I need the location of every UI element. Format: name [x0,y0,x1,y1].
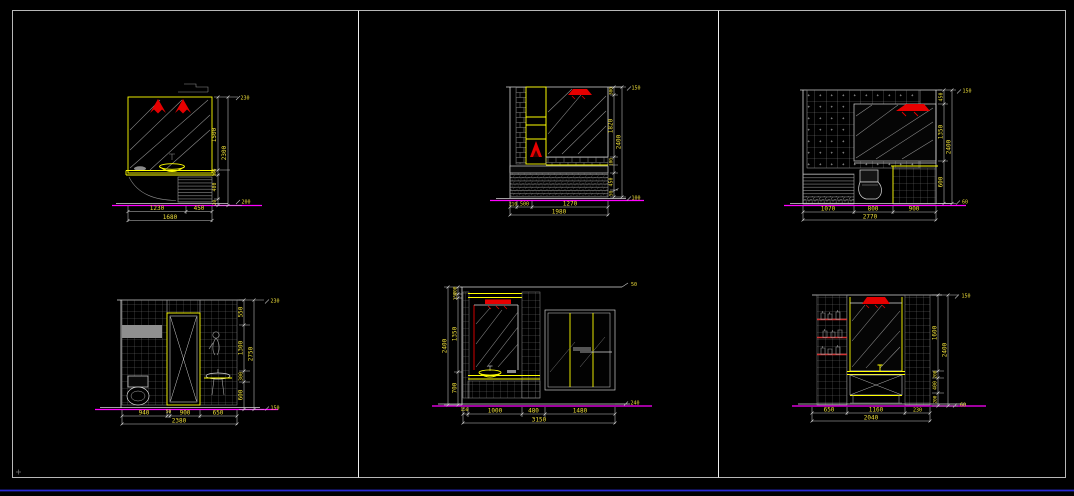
dim-label: 1980 [552,208,567,215]
dim-label: 1600 [931,325,938,340]
dim-label: 3150 [532,416,547,423]
dim-label: 2400 [941,342,948,357]
dim-note: 230 [240,96,249,102]
toilet-bowl [859,182,882,199]
toiletries [507,370,516,373]
dim-label: 210 [509,201,517,207]
tile-column [516,87,526,164]
dim-label: 700 [451,382,458,393]
pendant-lamp-outline [178,84,208,92]
dim-label: 150 [452,292,458,300]
dim-label: 1000 [488,407,503,414]
tile-column-right [905,295,930,405]
stone-strip-joints [526,117,546,139]
dim-note: 200 [241,200,250,206]
elevation-bottom-left: 940 50 900 650 2380 550 1300 300 600 275… [92,283,287,448]
light-bar [485,300,511,305]
dim-label: 2400 [441,338,448,353]
top-shelf [468,294,522,298]
wall-lamp-icon [175,99,191,114]
dim-label: 1160 [869,406,884,413]
cabinet-legs [850,395,902,403]
dim-note: 230 [270,299,279,305]
dim-label: 940 [139,409,150,416]
dim-note: 60 [962,200,968,206]
dim-label: 650 [213,409,224,416]
elevation-top-middle: 210 500 1270 1980 300 1820 100 450 50 24… [486,62,651,227]
dim-label: 2380 [172,417,187,424]
dim-label: 2400 [945,139,952,154]
dim-label: 300 [238,372,244,381]
dim-label: 450 [938,92,944,101]
dim-label: 2770 [863,213,878,220]
dim-note: 150 [631,86,640,92]
dim-label: 2750 [247,346,254,361]
dim-label: 1480 [573,407,588,414]
dim-label: 400 [212,182,218,191]
toilet-bowl [127,387,149,405]
dim-label: 1500 [211,127,218,142]
dim-label: 480 [528,407,539,414]
dim-label: 1680 [163,214,178,221]
elevation-top-left: 1230 450 1680 1500 150 400 20 2300 230 2… [110,80,280,230]
elevation-bottom-right: 650 1160 230 2040 1600 200 400 200 2400 … [790,283,995,448]
cabinet-texture [510,173,608,197]
dim-label: 50 [166,409,172,415]
dim-label: 650 [824,406,835,413]
drawer-stack [178,177,212,202]
dim-label: 230 [913,407,922,413]
mirror-glass-hatch [476,308,518,367]
dim-label: 1070 [821,205,836,212]
cad-viewport[interactable]: 1230 450 1680 1500 150 400 20 2300 230 2… [0,0,1074,496]
dim-note: 150 [270,406,279,412]
faucet [169,154,175,160]
dimensions: 1230 450 1680 1500 150 400 20 2300 230 2… [127,96,251,223]
soap-dish [134,166,146,170]
dim-label: 600 [937,176,944,187]
dim-label: 500 [520,201,529,207]
tiled-skirt [468,381,540,398]
dim-label: 900 [180,409,191,416]
dim-label: 1350 [937,124,944,139]
dim-label: 1820 [607,118,614,133]
wall-lamp-icon [150,99,166,114]
mirror-frame [474,305,518,370]
dim-label: 400 [932,381,938,390]
dim-label: 150 [212,168,218,176]
vessel-basin [160,164,185,170]
tile-wall-top [167,300,200,313]
dim-note: 100 [631,196,640,202]
elevation-top-right: 1070 800 900 2770 450 1350 600 2400 150 … [780,78,980,233]
ucs-icon [16,470,21,475]
niche-shelf [122,325,162,338]
dim-label: 2400 [615,134,622,149]
dim-note: 50 [631,282,637,288]
dim-label: 300 [608,87,614,95]
ceiling-light [568,89,592,95]
dim-note: 240 [630,401,639,407]
light-rays [488,306,507,309]
dim-label: 2040 [864,414,879,421]
drawing-geometry [112,84,262,206]
open-shelf-curve [129,177,176,201]
dim-label: 550 [237,306,244,317]
dim-label: 1270 [563,200,578,207]
dim-label: 1300 [237,340,244,355]
dim-label: 150 [461,407,469,413]
mirror-glass-hatch [130,100,210,170]
drawing-geometry [432,287,652,406]
counter-slab [510,166,608,173]
drawing-geometry [792,295,986,406]
dim-note: 60 [960,403,966,409]
toilet-cistern [860,170,878,182]
dim-label: 450 [194,205,205,212]
dim-label: 1350 [451,326,458,341]
bench-base-texture [803,196,854,204]
dim-label: 200 [932,395,938,403]
dim-label: 20 [212,200,218,206]
elevation-bottom-middle: 150 1000 480 1480 3150 200 150 1350 700 … [430,272,655,447]
door-swing-lines [171,317,197,401]
mirror-frame [128,97,212,173]
dim-note: 150 [962,89,971,95]
glass-label-smudge [573,347,591,351]
dim-note: 150 [961,294,970,300]
dim-label: 600 [237,389,244,400]
dim-label: 800 [868,205,879,212]
dim-label: 1230 [150,205,165,212]
mirror-glass-hatch [548,89,606,154]
dim-label: 100 [608,158,614,166]
dim-label: 50 [608,191,614,197]
dim-label: 450 [608,177,614,186]
half-wall-tiles [893,168,936,204]
dim-label: 900 [909,205,920,212]
dim-label: 2300 [221,145,228,160]
toilet-cistern [128,376,148,387]
counter-tile-band [546,157,608,165]
dim-label: 200 [932,370,938,378]
